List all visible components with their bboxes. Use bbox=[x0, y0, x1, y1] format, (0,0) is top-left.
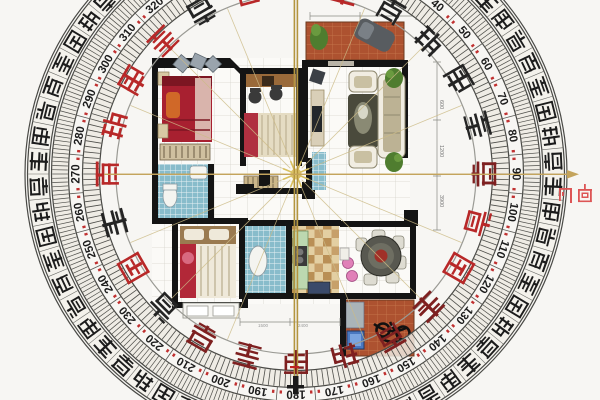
svg-text:600: 600 bbox=[438, 100, 444, 109]
svg-text:1200: 1200 bbox=[438, 145, 444, 157]
svg-text:1500: 1500 bbox=[258, 323, 269, 328]
svg-text:3900: 3900 bbox=[438, 195, 444, 207]
svg-text:270: 270 bbox=[71, 164, 83, 183]
svg-text:2400: 2400 bbox=[298, 323, 309, 328]
svg-text:80: 80 bbox=[505, 129, 519, 144]
